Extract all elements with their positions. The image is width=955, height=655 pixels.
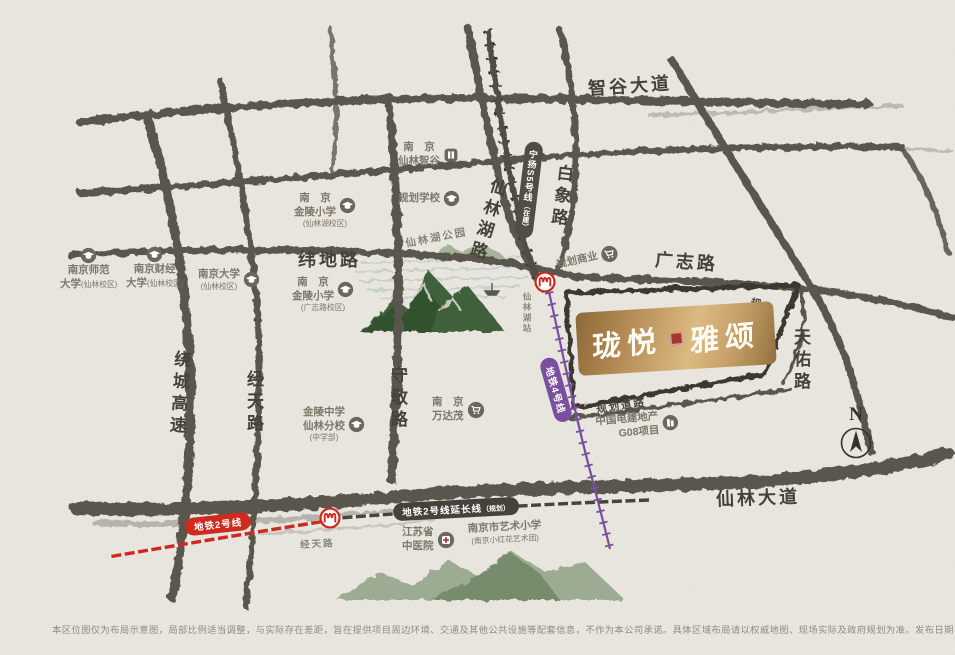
poi-xianlin-zhigu: 南 京 仙林智谷 [398, 141, 459, 168]
metro-station-icon-jingtian [319, 507, 341, 529]
road-label-shoujing: 守敬路 [385, 366, 410, 432]
school-icon [443, 190, 460, 207]
road-label-tianyou: 天佑路 [788, 328, 813, 394]
poi-planned-school: 规划学校 [398, 190, 460, 207]
compass: N [836, 404, 876, 460]
school-icon [348, 416, 365, 433]
poi-nanjing-finance-university: 南京财经 大学(仙林校区) [126, 246, 183, 290]
road-label-jingtian: 经天路 [241, 370, 266, 436]
logo-name-right: 雅颂 [689, 311, 759, 360]
poi-jinling-middle-school: 金陵中学 仙林分校 (中学部) [303, 406, 365, 443]
poi-jiangsu-tcm-hospital: 江苏省 中医院 [402, 526, 455, 553]
poi-nanjing-normal-university: 南京师范 大学(仙林校区) [60, 247, 117, 291]
disclaimer-text: 本区位图仅为布局示意图，局部比例适当调整，与实际存在差距，旨在提供项目周边环境、… [0, 622, 955, 636]
road-label-guangzhi: 广志路 [654, 246, 719, 276]
road-label-weidi: 纬地路 [298, 246, 361, 272]
poi-nanjing-art-primary: 南京市艺术小学 (南京小红花艺术团) [467, 519, 542, 547]
station-label-jingtian: 经天路 [300, 535, 335, 551]
location-map: 智谷大道 纬地路 广志路 仙林大道 绕城高速 经天路 守敬路 仙林湖路 白象路 … [0, 0, 955, 655]
building-icon [443, 147, 459, 163]
poi-jinling-primary-xianlinhu: 南 京 金陵小学 (仙林湖校区) [294, 192, 356, 229]
compass-needle-icon [839, 426, 873, 460]
poi-jinling-primary-guangzhi: 南 京 金陵小学 (广志路校区) [292, 276, 354, 313]
logo-name-left: 珑悦 [592, 317, 662, 366]
school-icon [146, 246, 163, 263]
school-icon [243, 271, 260, 288]
metro-station-icon-xianlinhu [534, 271, 556, 293]
school-icon [80, 247, 97, 264]
compass-north-label: N [849, 404, 863, 426]
school-icon [339, 197, 356, 214]
shopping-cart-icon [467, 401, 485, 419]
poi-wanda-mall: 南 京 万达茂 [432, 396, 485, 423]
project-icon [661, 414, 679, 432]
hospital-icon [437, 531, 455, 549]
logo-seal-icon [669, 331, 683, 345]
school-icon [337, 281, 354, 298]
road-label-xianlin-avenue: 仙林大道 [716, 483, 801, 512]
poi-nanjing-university: 南京大学 (仙林校区) [198, 268, 260, 292]
station-label-xianlinhu: 仙林湖站 [521, 292, 533, 334]
project-logo: 珑悦 雅颂 [575, 301, 776, 376]
